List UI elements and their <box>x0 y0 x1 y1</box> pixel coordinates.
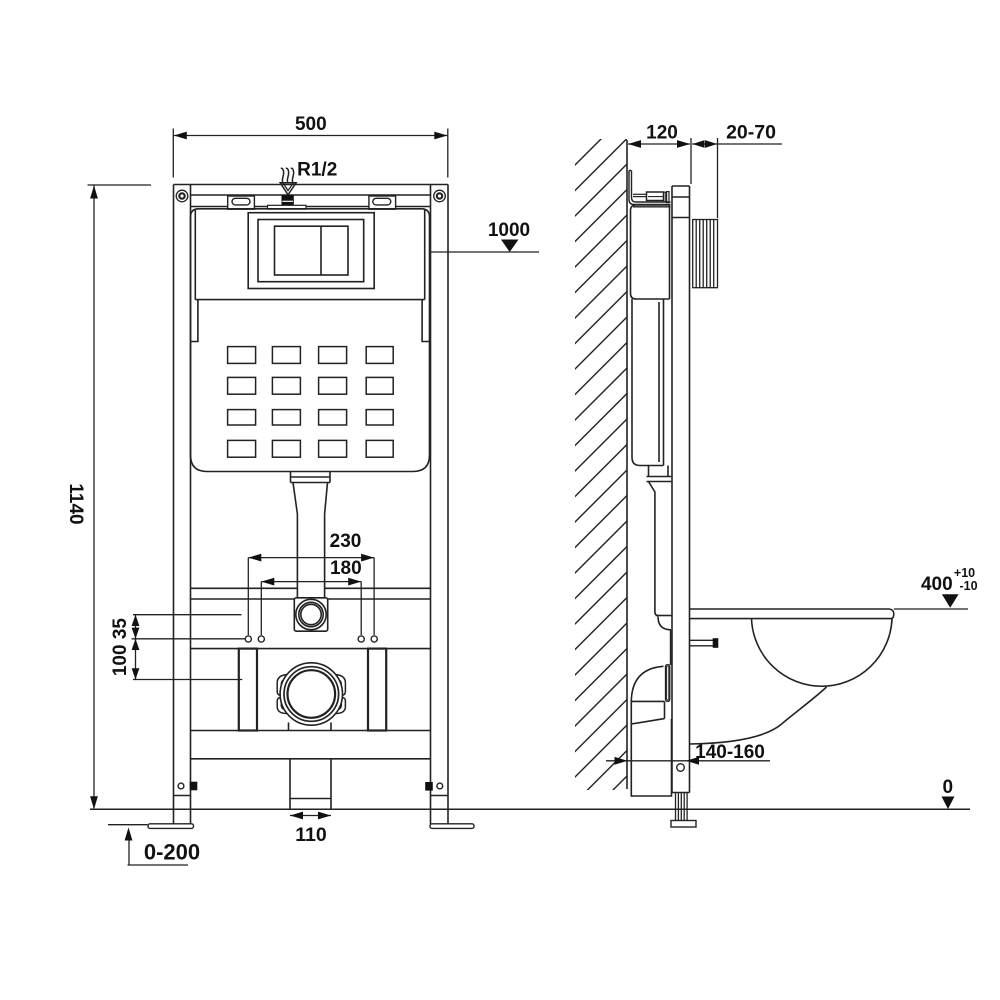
svg-text:20-70: 20-70 <box>726 122 776 144</box>
svg-text:500: 500 <box>295 114 327 135</box>
svg-text:180: 180 <box>330 558 362 579</box>
svg-text:110: 110 <box>295 824 327 846</box>
svg-text:R1/2: R1/2 <box>297 160 337 181</box>
svg-text:0-200: 0-200 <box>144 840 200 865</box>
svg-text:140-160: 140-160 <box>695 742 765 763</box>
svg-text:400: 400 <box>921 574 953 595</box>
svg-text:100: 100 <box>110 644 131 676</box>
svg-text:0: 0 <box>943 777 954 798</box>
svg-text:-10: -10 <box>959 579 977 593</box>
svg-text:1000: 1000 <box>488 220 530 241</box>
svg-text:230: 230 <box>330 531 362 552</box>
svg-text:+10: +10 <box>954 566 975 580</box>
svg-text:1140: 1140 <box>65 483 86 524</box>
svg-text:35: 35 <box>110 618 131 640</box>
svg-text:120: 120 <box>646 123 678 144</box>
